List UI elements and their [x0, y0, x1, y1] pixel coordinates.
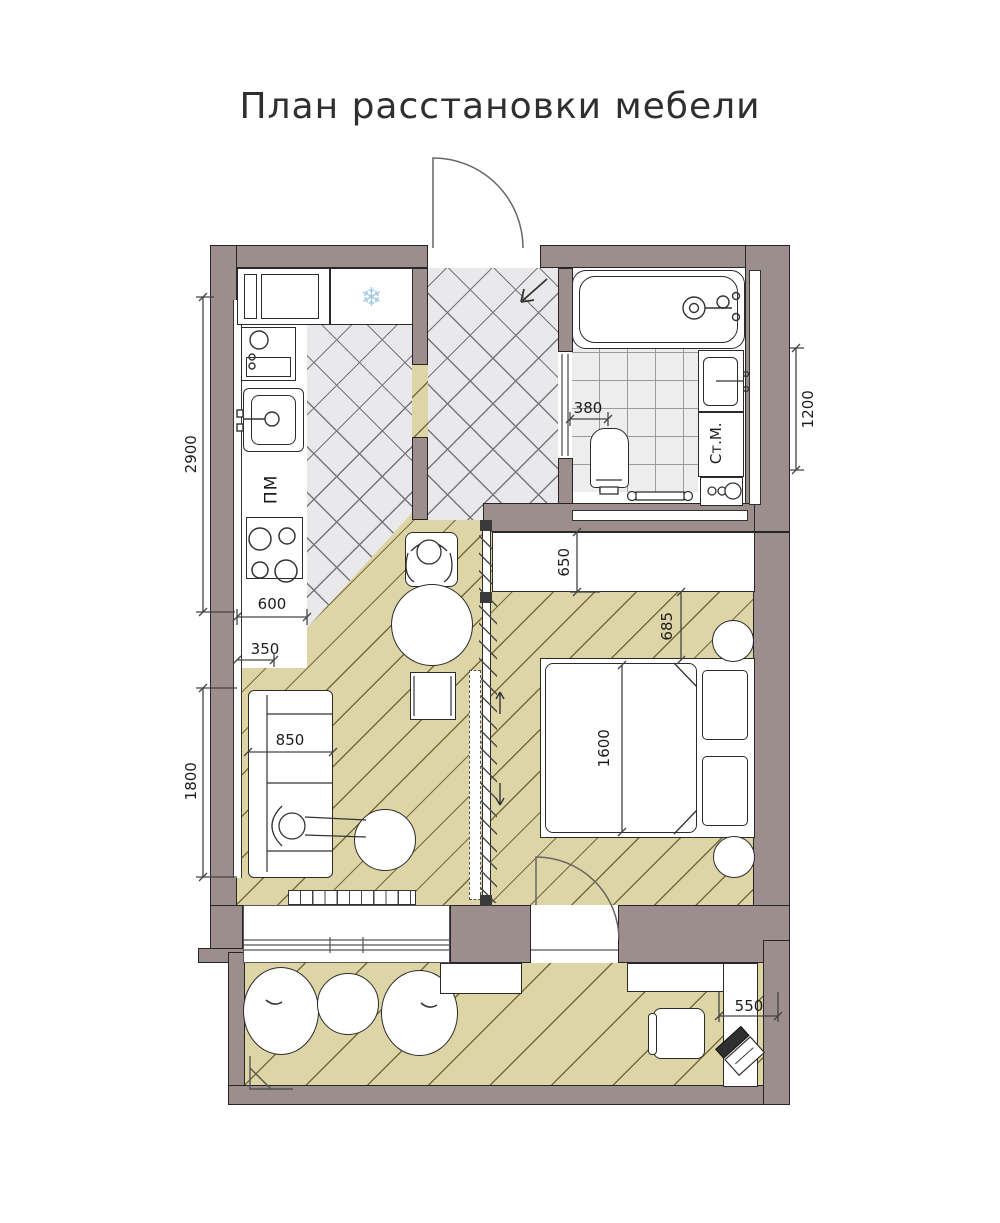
- living-room-window: [243, 905, 450, 963]
- sliding-door-panel: [469, 670, 481, 900]
- dining-chair: [410, 672, 456, 720]
- wall-top-left: [210, 245, 428, 268]
- dim-label-650: 650: [556, 527, 573, 597]
- wall-balcony-left: [228, 952, 245, 1105]
- partition-post: [480, 895, 492, 906]
- bathtub-inner: [579, 276, 738, 343]
- toilet: [590, 428, 629, 488]
- bathroom-sink-basin: [703, 357, 738, 406]
- dim-label-600: 600: [240, 596, 304, 613]
- washing-machine-label: Ст.М.: [708, 411, 725, 475]
- wall-bottom-pier: [450, 905, 531, 963]
- dim-label-1600: 1600: [596, 708, 613, 788]
- dim-label-1800: 1800: [183, 736, 200, 826]
- desk-chair-back: [648, 1013, 657, 1055]
- dim-label-550: 550: [722, 998, 776, 1015]
- radiator: [288, 890, 416, 905]
- wall-niche: [572, 510, 748, 521]
- dishwasher-label: ПМ: [263, 464, 282, 514]
- wall-kitchen-hall-lower: [412, 437, 428, 520]
- wall-right-bedroom: [753, 532, 790, 963]
- ottoman: [354, 809, 416, 871]
- floor-plan-page: План расстановки мебели ❄: [0, 0, 1000, 1223]
- pillow: [702, 670, 748, 740]
- balcony-bench: [440, 963, 522, 994]
- wall-balcony-right: [763, 940, 790, 1105]
- dining-chair: [405, 532, 458, 587]
- washing-machine-top: [700, 477, 743, 506]
- wall-panel-strip: [233, 300, 242, 878]
- bed-mattress: [545, 663, 697, 833]
- balcony-door-opening: [531, 905, 618, 963]
- wall-hall-bath-upper: [558, 268, 573, 352]
- dim-label-350: 350: [240, 641, 290, 658]
- kitchen-boiler-panel: [246, 357, 291, 377]
- balcony-table: [317, 973, 379, 1035]
- dim-label-2900: 2900: [183, 409, 200, 499]
- dim-label-850: 850: [255, 732, 325, 749]
- entry-door-arc: [433, 158, 523, 248]
- vent-shaft: [749, 270, 761, 505]
- kitchen-cabinet-door: [244, 274, 257, 319]
- snowflake-icon: ❄: [330, 273, 413, 323]
- stove: [246, 517, 303, 579]
- dim-label-685: 685: [659, 591, 676, 661]
- wardrobe: [492, 532, 755, 592]
- desk-side: [723, 963, 758, 1087]
- nightstand: [712, 620, 754, 662]
- partition-post: [480, 520, 492, 531]
- pillow: [702, 756, 748, 826]
- sofa: [248, 690, 333, 878]
- partition-post: [480, 592, 492, 603]
- kitchen-cabinet-door: [261, 274, 319, 319]
- wall-balcony-bottom: [228, 1085, 790, 1105]
- dining-table: [391, 584, 473, 666]
- dim-label-380: 380: [565, 400, 611, 417]
- page-title: План расстановки мебели: [0, 86, 1000, 127]
- wall-bottom-left-corner: [210, 905, 243, 952]
- dim-label-1200: 1200: [800, 369, 817, 449]
- bean-bag-chair: [243, 967, 319, 1055]
- wall-kitchen-hall-upper: [412, 268, 428, 365]
- nightstand: [713, 836, 755, 878]
- hallway-floor: [428, 268, 558, 520]
- kitchen-sink-basin: [251, 395, 296, 445]
- desk-chair: [653, 1008, 705, 1059]
